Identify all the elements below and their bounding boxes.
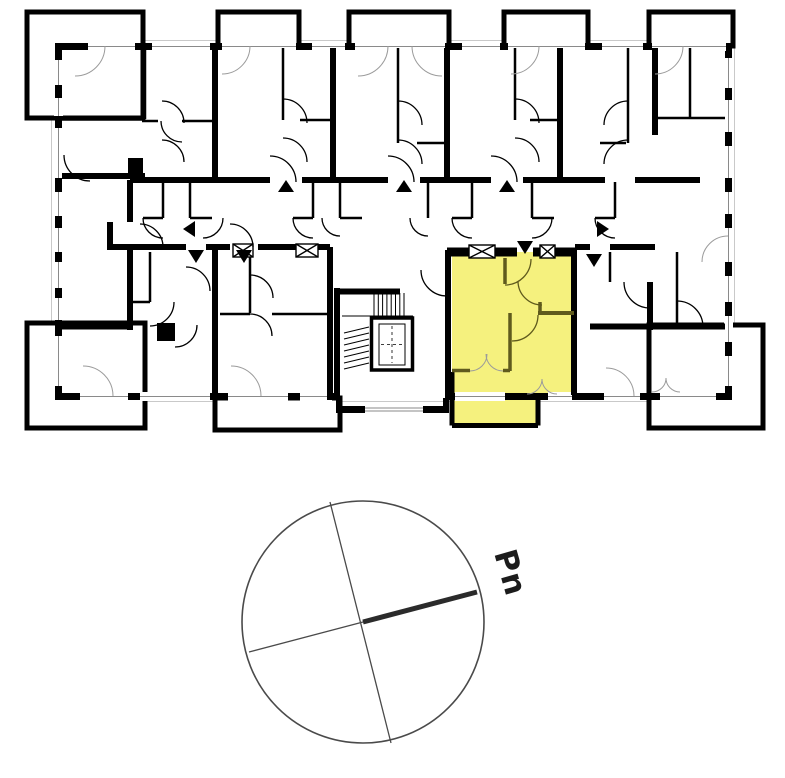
shaft-icon: [469, 245, 495, 258]
balcony-bottom-left-corner: [27, 323, 145, 428]
arrow-down-icon: [188, 250, 204, 263]
arrow-up-icon: [499, 180, 515, 192]
arrow-left-icon: [183, 221, 195, 237]
floorplan-locator-page: Pn: [0, 0, 785, 778]
north-needle-icon: [363, 592, 477, 622]
compass-rose: Pn: [242, 501, 534, 743]
balcony-top-4: [504, 12, 588, 46]
building-footprint-outline: [52, 41, 735, 402]
balcony-top-left-corner: [27, 12, 143, 118]
window-door-arcs: [75, 46, 728, 396]
shaft-icon: [296, 244, 318, 257]
door-arcs: [64, 99, 703, 347]
balcony-top-3: [349, 12, 449, 46]
floorplan-canvas: Pn: [0, 0, 785, 778]
arrow-up-icon: [396, 180, 412, 192]
arrow-down-icon: [586, 254, 602, 267]
balcony-top-2: [218, 12, 299, 46]
terrace-bottom-center: [215, 398, 340, 430]
shaft-icon: [540, 245, 555, 258]
outer-walls: [55, 43, 732, 413]
balcony-top-right: [649, 12, 733, 46]
facade-windows: [54, 42, 733, 413]
stair-core: [342, 293, 413, 370]
north-label: Pn: [486, 545, 534, 600]
balcony-bottom-right-corner: [649, 325, 763, 428]
arrow-up-icon: [278, 180, 294, 192]
